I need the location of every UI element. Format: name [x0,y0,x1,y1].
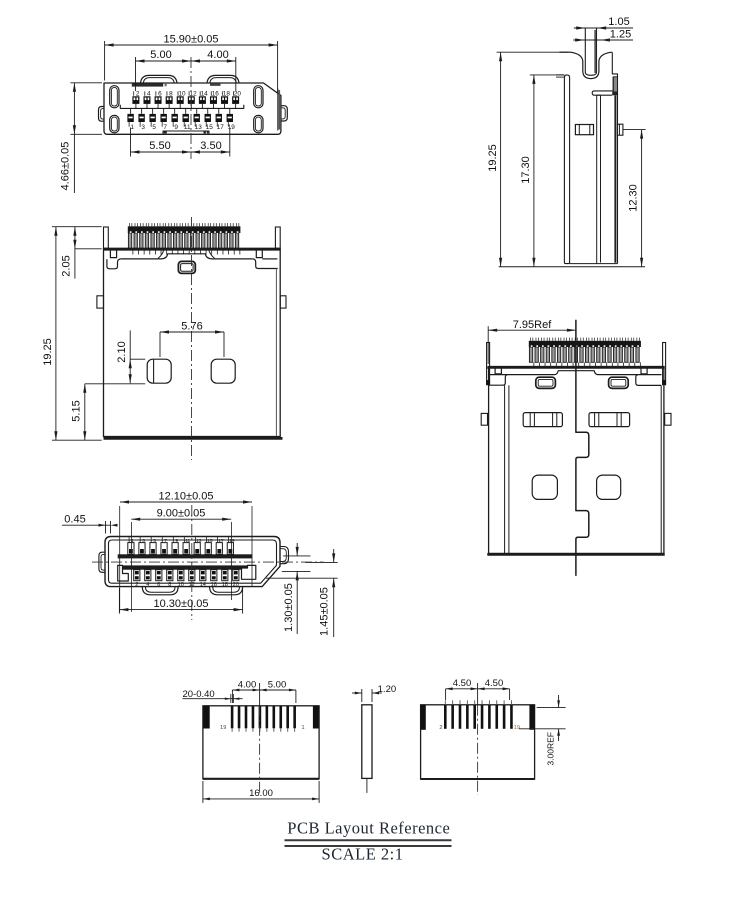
svg-text:2: 2 [439,725,442,731]
svg-text:20: 20 [233,582,239,588]
svg-text:17: 17 [217,124,225,131]
svg-text:19: 19 [514,725,520,731]
svg-text:18: 18 [222,582,228,588]
svg-text:5.00: 5.00 [150,49,171,61]
svg-text:2.05: 2.05 [60,255,72,276]
svg-text:12.10±0.05: 12.10±0.05 [159,490,214,502]
svg-text:6: 6 [158,91,162,98]
svg-text:5: 5 [152,124,156,131]
svg-text:2: 2 [135,582,138,588]
svg-text:4: 4 [147,91,151,98]
svg-text:20: 20 [234,91,242,98]
svg-text:3: 3 [142,538,145,544]
svg-text:5.50: 5.50 [149,140,170,152]
svg-text:11: 11 [185,538,190,544]
svg-text:17.30: 17.30 [520,156,532,184]
svg-text:0.45: 0.45 [64,514,85,526]
svg-text:5.76: 5.76 [181,320,202,332]
svg-text:19: 19 [228,124,236,131]
svg-text:PCB Layout Reference: PCB Layout Reference [287,819,450,838]
svg-text:16: 16 [211,582,217,588]
svg-text:19.25: 19.25 [487,144,499,172]
svg-text:16: 16 [212,91,220,98]
svg-text:4: 4 [146,582,149,588]
svg-text:4.00: 4.00 [238,679,257,690]
svg-text:8: 8 [168,582,171,588]
svg-text:13: 13 [196,538,202,544]
svg-text:18: 18 [223,91,231,98]
svg-text:13: 13 [195,124,203,131]
svg-text:4.50: 4.50 [453,678,472,689]
svg-text:10: 10 [178,91,186,98]
svg-text:9.00±0.05: 9.00±0.05 [157,507,206,519]
svg-text:SCALE 2:1: SCALE 2:1 [322,845,404,864]
svg-text:1.45±0.05: 1.45±0.05 [319,587,331,636]
svg-text:3.50: 3.50 [200,140,221,152]
svg-text:3.00REF: 3.00REF [546,732,556,766]
svg-text:15: 15 [207,538,213,544]
svg-text:1.30±0.05: 1.30±0.05 [283,583,295,632]
svg-text:4.00: 4.00 [207,49,228,61]
svg-text:5: 5 [153,538,156,544]
svg-text:12.30: 12.30 [628,184,640,212]
svg-text:1: 1 [302,725,305,731]
svg-text:7: 7 [163,124,167,131]
svg-text:2.10: 2.10 [116,341,128,362]
svg-text:11: 11 [184,124,191,131]
svg-text:19: 19 [229,538,235,544]
svg-text:4.50: 4.50 [485,678,504,689]
svg-text:4.66±0.05: 4.66±0.05 [60,142,72,191]
svg-text:19.25: 19.25 [42,338,54,366]
svg-text:1.20: 1.20 [378,684,397,695]
svg-text:1.05: 1.05 [608,16,629,28]
svg-text:5.15: 5.15 [70,400,82,421]
svg-text:7: 7 [164,538,167,544]
svg-text:19: 19 [220,725,226,731]
svg-text:2: 2 [136,91,140,98]
svg-text:8: 8 [169,91,173,98]
svg-text:14: 14 [201,91,209,98]
svg-text:9: 9 [175,538,178,544]
svg-text:6: 6 [157,582,160,588]
svg-text:3: 3 [141,124,145,131]
svg-text:9: 9 [174,124,178,131]
svg-text:15.90±0.05: 15.90±0.05 [164,34,219,46]
svg-text:10.30±0.05: 10.30±0.05 [154,598,209,610]
svg-text:7.95Ref: 7.95Ref [513,319,552,331]
svg-text:5.00: 5.00 [268,679,287,690]
svg-text:16.00: 16.00 [249,788,273,799]
svg-text:1.25: 1.25 [610,28,631,40]
svg-text:17: 17 [218,538,224,544]
svg-text:15: 15 [206,124,214,131]
svg-text:14: 14 [200,582,206,588]
